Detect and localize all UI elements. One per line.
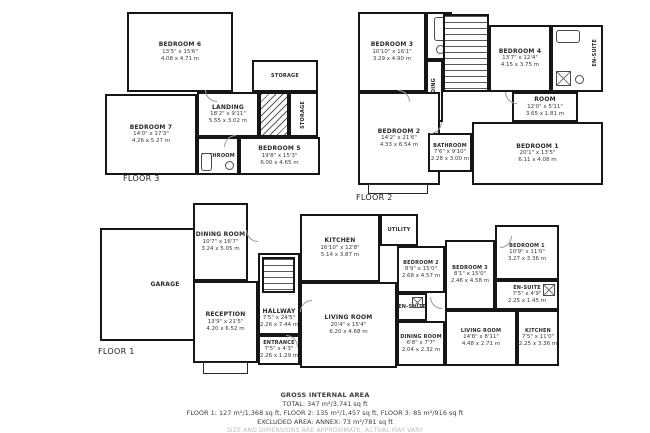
staircase-floor1 [262, 257, 295, 293]
room-dims-ft: 10'7" x 16'7" [203, 239, 239, 246]
room-name: BEDROOM 5 [258, 145, 301, 153]
footer-total: TOTAL: 347 m²/3,741 sq ft [0, 400, 650, 408]
footer-per-floor: FLOOR 1: 127 m²/1,368 sq ft, FLOOR 2: 13… [0, 409, 650, 417]
room-dims-ft: 6'8" x 7'7" [407, 340, 436, 347]
room-annex-dining: DINING ROOM 6'8" x 7'7" 2.04 x 2.32 m [397, 321, 445, 366]
room-f1-utility: UTILITY [380, 214, 418, 246]
room-name: STORAGE [271, 73, 299, 79]
floorplan-canvas: BEDROOM 6 13'5" x 15'6" 4.08 x 4.71 m ST… [0, 0, 650, 433]
room-dims-ft: 14'2" x 21'6" [381, 135, 417, 142]
room-dims-m: 5.55 x 3.02 m [209, 118, 247, 125]
room-f2-bedroom1: BEDROOM 1 20'1" x 13'5" 6.11 x 4.08 m [472, 122, 603, 185]
room-dims-m: 3.24 x 5.05 m [201, 246, 239, 253]
room-annex-bedroom1: BEDROOM 1 10'9" x 11'0" 3.27 x 3.36 m [495, 225, 559, 280]
room-dims-m: 4.20 x 6.52 m [206, 326, 244, 333]
room-annex-kitchen: KITCHEN 7'5" x 11'0" 2.25 x 3.36 m [517, 310, 559, 366]
room-dims-m: 3.29 x 4.90 m [373, 56, 411, 63]
room-dims-ft: 10'9" x 11'0" [509, 249, 545, 256]
room-f1-dining: DINING ROOM 10'7" x 16'7" 3.24 x 5.05 m [193, 203, 248, 281]
room-f3-storage-1: STORAGE [252, 60, 318, 92]
staircase-floor3 [259, 92, 289, 137]
room-dims-m: 4.48 x 2.71 m [462, 341, 500, 348]
floor1-label: FLOOR 1 [98, 347, 135, 356]
room-f2-ensuite: EN-SUITE [551, 25, 603, 92]
room-f2-bathroom: BATHROOM 7'6" x 9'10" 2.28 x 3.00 m [428, 133, 472, 172]
room-dims-m: 5.14 x 3.87 m [321, 252, 359, 259]
room-name: BEDROOM 6 [159, 41, 202, 49]
door-arc-icon [430, 297, 442, 309]
room-f3-bedroom5: BEDROOM 5 19'8" x 15'3" 6.00 x 4.65 m [239, 137, 320, 175]
door-arc-icon [505, 92, 517, 104]
room-annex-ensuite-right: EN-SUITE 7'5" x 4'9" 2.25 x 1.45 m [495, 280, 559, 310]
room-annex-living: LIVING ROOM 14'8" x 8'11" 4.48 x 2.71 m [445, 310, 517, 366]
floor2-label: FLOOR 2 [356, 193, 393, 202]
room-f2-room: ROOM 12'0" x 5'11" 3.65 x 1.81 m [512, 92, 578, 122]
room-dims-ft: 14'0" x 17'3" [133, 131, 169, 138]
room-name: GARAGE [150, 281, 179, 289]
room-name: EN-SUITE [592, 39, 598, 67]
room-f3-landing: LANDING 18'2" x 9'11" 5.55 x 3.02 m [197, 92, 259, 137]
room-f1-kitchen: KITCHEN 16'10" x 12'8" 5.14 x 3.87 m [300, 214, 380, 282]
room-dims-ft: 7'5" x 11'0" [522, 334, 554, 341]
room-dims-m: 2.26 x 7.44 m [260, 322, 298, 329]
toilet-icon [575, 75, 584, 84]
room-f1-reception: RECEPTION 13'9" x 21'5" 4.20 x 6.52 m [193, 281, 258, 363]
room-dims-ft: 8'9" x 15'0" [405, 266, 437, 273]
toilet-icon [225, 161, 234, 170]
room-f2-bedroom3: BEDROOM 3 10'10" x 16'1" 3.29 x 4.90 m [358, 12, 426, 92]
room-dims-ft: 16'10" x 12'8" [320, 245, 359, 252]
room-dims-ft: 19'8" x 15'3" [262, 153, 298, 160]
room-dims-ft: 20'4" x 15'4" [331, 322, 367, 329]
room-dims-m: 3.27 x 3.36 m [508, 256, 546, 263]
room-dims-m: 4.33 x 6.54 m [380, 142, 418, 149]
room-f1-living: LIVING ROOM 20'4" x 15'4" 6.20 x 4.68 m [300, 282, 397, 368]
room-name: RECEPTION [206, 311, 246, 319]
room-name: HALLWAY [262, 308, 295, 316]
room-dims-m: 6.20 x 4.68 m [329, 329, 367, 336]
room-name: DINING ROOM [196, 231, 246, 239]
room-dims-ft: 8'1" x 15'0" [454, 271, 486, 278]
bay-window [203, 362, 248, 374]
room-f3-bedroom6: BEDROOM 6 13'5" x 15'6" 4.08 x 4.71 m [127, 12, 233, 92]
floor3-label: FLOOR 3 [123, 174, 160, 183]
bathtub-icon [201, 153, 212, 171]
room-dims-m: 3.65 x 1.81 m [526, 111, 564, 118]
room-annex-bedroom3: BEDROOM 3 8'1" x 15'0" 2.46 x 4.58 m [445, 240, 495, 310]
room-name: BEDROOM 2 [378, 128, 421, 136]
room-name: ROOM [534, 96, 556, 104]
room-dims-m: 2.26 x 1.29 m [260, 353, 298, 360]
room-dims-m: 2.46 x 4.58 m [451, 278, 489, 285]
bathtub-icon [556, 30, 580, 43]
room-dims-m: 2.28 x 3.00 m [431, 156, 469, 163]
room-dims-m: 4.15 x 3.75 m [501, 62, 539, 69]
shower-icon [412, 297, 423, 308]
room-dims-m: 4.26 x 5.27 m [132, 138, 170, 145]
room-name: UTILITY [388, 227, 411, 233]
room-dims-ft: 20'1" x 13'5" [520, 150, 556, 157]
room-dims-ft: 14'8" x 8'11" [463, 334, 499, 341]
room-dims-m: 4.08 x 4.71 m [161, 56, 199, 63]
room-name: LIVING ROOM [325, 314, 373, 322]
room-dims-ft: 18'2" x 9'11" [210, 111, 246, 118]
room-dims-m: 6.11 x 4.08 m [518, 157, 556, 164]
room-name: STORAGE [300, 101, 306, 129]
room-dims-ft: 7'6" x 9'10" [434, 149, 466, 156]
room-annex-ensuite-left: EN-SUITE [397, 293, 427, 321]
room-dims-ft: 13'7" x 12'4" [502, 55, 538, 62]
room-name: BEDROOM 7 [130, 124, 173, 132]
room-name: KITCHEN [325, 237, 356, 245]
footer-disclaimer: SIZE AND DIMENSIONS ARE APPROXIMATE, ACT… [0, 427, 650, 433]
room-dims-ft: 13'5" x 15'6" [162, 49, 198, 56]
room-f3-storage-2: STORAGE [289, 92, 318, 137]
room-annex-bedroom2: BEDROOM 2 8'9" x 15'0" 2.68 x 4.57 m [397, 246, 445, 293]
room-dims-m: 2.68 x 4.57 m [402, 273, 440, 280]
room-dims-ft: 7'5" x 24'5" [263, 315, 295, 322]
room-name: BEDROOM 4 [499, 48, 542, 56]
room-f2-bedroom4: BEDROOM 4 13'7" x 12'4" 4.15 x 3.75 m [489, 25, 551, 92]
room-dims-ft: 12'0" x 5'11" [527, 104, 563, 111]
shower-icon [556, 71, 571, 86]
room-dims-ft: 10'10" x 16'1" [372, 49, 411, 56]
room-dims-m: 2.25 x 1.45 m [508, 298, 546, 305]
room-dims-m: 6.00 x 4.65 m [260, 160, 298, 167]
room-dims-ft: 7'5" x 4'3" [265, 346, 294, 353]
room-name: BEDROOM 3 [371, 41, 414, 49]
room-dims-m: 2.25 x 3.36 m [519, 341, 557, 348]
footer-excluded-area: EXCLUDED AREA: ANNEX: 73 m²/781 sq ft [0, 418, 650, 426]
room-dims-m: 2.04 x 2.32 m [402, 347, 440, 354]
shower-icon [543, 284, 555, 296]
room-dims-ft: 7'5" x 4'9" [513, 291, 542, 298]
room-dims-ft: 13'9" x 21'5" [208, 319, 244, 326]
room-f3-bedroom7: BEDROOM 7 14'0" x 17'3" 4.26 x 5.27 m [105, 94, 197, 175]
room-name: LANDING [212, 104, 244, 112]
room-name: BEDROOM 1 [516, 143, 559, 151]
gross-internal-area-note: GROSS INTERNAL AREA TOTAL: 347 m²/3,741 … [0, 391, 650, 433]
staircase-floor2 [443, 14, 489, 92]
footer-title: GROSS INTERNAL AREA [0, 391, 650, 399]
